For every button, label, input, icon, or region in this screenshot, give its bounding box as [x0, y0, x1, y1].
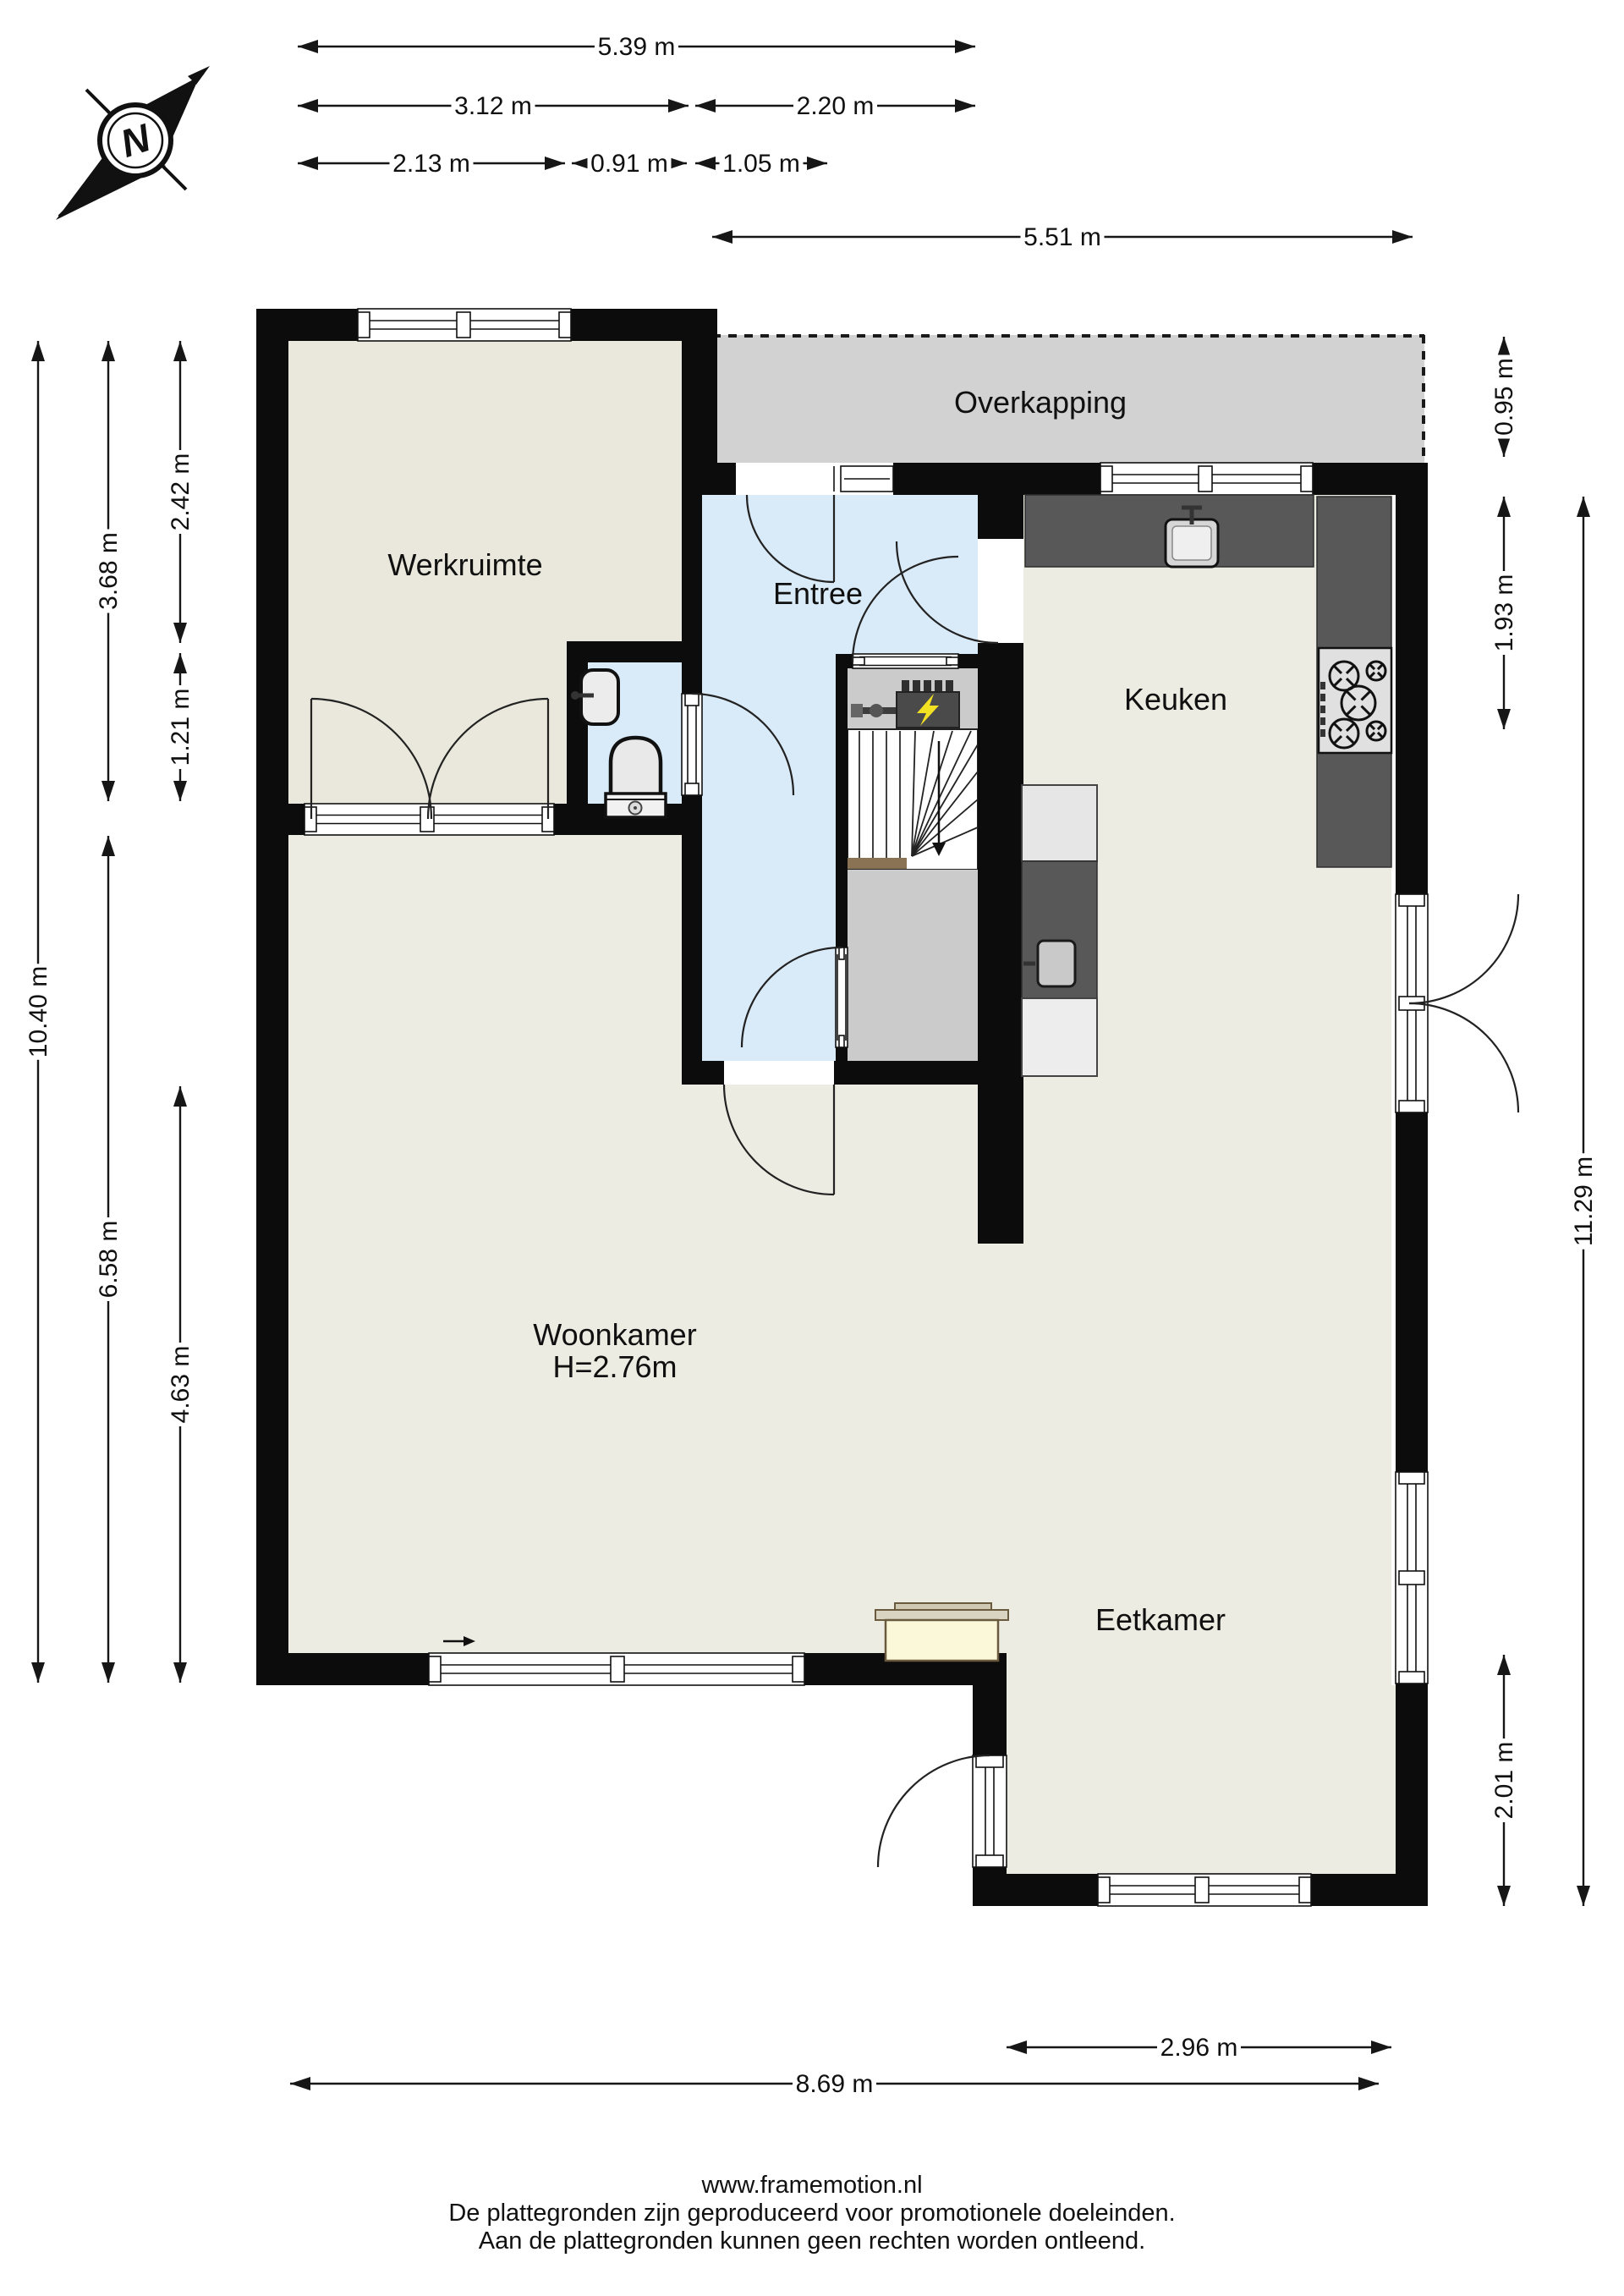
toilet-bowl — [611, 738, 661, 800]
dimension-10.40m: 10.40 m — [25, 341, 52, 1683]
dimension-0.91m: 0.91 m — [572, 150, 687, 178]
arrowhead-left-icon — [712, 230, 732, 244]
toilet-door-frame-box — [682, 694, 702, 795]
dimension-label: 8.69 m — [796, 2070, 874, 2098]
fireplace-mantel — [875, 1610, 1008, 1620]
arrowhead-left-icon — [1007, 2041, 1027, 2054]
arrowhead-left-icon — [695, 99, 716, 113]
dimension-11.29m: 11.29 m — [1570, 497, 1598, 1906]
arrowhead-up-icon — [173, 653, 187, 673]
dimension-label: 2.13 m — [392, 150, 470, 178]
window-werkruimte-north-post — [559, 312, 571, 338]
arrowhead-up-icon — [31, 341, 45, 361]
dimension-2.20m: 2.20 m — [695, 92, 975, 120]
window-keuken-north-post — [1301, 466, 1313, 492]
arrowhead-up-icon — [1577, 497, 1590, 517]
dimension-1.93m: 1.93 m — [1490, 497, 1518, 729]
window-werkruimte-north-mullion — [457, 312, 470, 338]
arrowhead-right-icon — [1358, 2077, 1379, 2090]
west-door-frame — [973, 1755, 1007, 1867]
dimension-label: 5.39 m — [598, 33, 676, 61]
label-woonkamer-height: H=2.76m — [552, 1349, 677, 1384]
dimension-1.05m: 1.05 m — [695, 150, 827, 178]
label-overkapping: Overkapping — [954, 385, 1127, 420]
footer-disclaimer-1: De plattegronden zijn geproduceerd voor … — [0, 2200, 1624, 2227]
label-werkruimte: Werkruimte — [387, 547, 542, 582]
dimension-4.63m: 4.63 m — [167, 1086, 195, 1683]
compass-north: N — [56, 66, 210, 220]
window-woonkamer-south-post — [793, 1656, 804, 1682]
meterkast-door-frame-post — [946, 657, 958, 665]
dimension-label: 6.58 m — [95, 1221, 123, 1299]
dimension-2.13m: 2.13 m — [298, 150, 565, 178]
fireplace-body — [886, 1620, 998, 1661]
toilet-door-frame-post — [685, 694, 699, 706]
window-woonkamer-south — [429, 1653, 804, 1685]
window-woonkamer-south-post — [429, 1656, 441, 1682]
dimension-label: 11.29 m — [1570, 1156, 1598, 1246]
arrowhead-left-icon — [298, 157, 318, 170]
french-doors-frame-post — [1399, 894, 1424, 906]
dimension-label: 1.93 m — [1490, 574, 1518, 652]
window-keuken-north — [1100, 463, 1313, 495]
toilet-door-frame — [682, 694, 702, 795]
footer-url: www.framemotion.nl — [0, 2172, 1624, 2200]
dimension-3.12m: 3.12 m — [298, 92, 689, 120]
keuken-door-opening — [978, 539, 1023, 643]
arrowhead-right-icon — [545, 157, 565, 170]
wall-east — [1396, 463, 1428, 1906]
label-eetkamer: Eetkamer — [1095, 1602, 1226, 1637]
dimension-6.58m: 6.58 m — [95, 836, 123, 1683]
dimension-3.68m: 3.68 m — [95, 341, 123, 801]
arrowhead-up-icon — [101, 836, 115, 856]
arrowhead-down-icon — [173, 781, 187, 801]
window-eetkamer-east-post — [1399, 1672, 1424, 1684]
dimension-label: 2.96 m — [1160, 2034, 1238, 2062]
dimension-label: 5.51 m — [1023, 223, 1101, 251]
dimension-label: 2.42 m — [167, 453, 195, 531]
meter-pipe-end — [851, 704, 863, 717]
meterkast-door-frame-box — [853, 654, 958, 668]
dimension-1.21m: 1.21 m — [167, 653, 195, 801]
dimension-label: 0.95 m — [1490, 358, 1518, 436]
label-keuken: Keuken — [1124, 682, 1227, 717]
window-eetkamer-south-mullion — [1195, 1877, 1209, 1903]
storage-door-frame-post — [839, 948, 844, 959]
dimension-label: 0.91 m — [590, 150, 668, 178]
dimension-5.39m: 5.39 m — [298, 33, 975, 61]
arrowhead-down-icon — [1497, 709, 1511, 729]
west-door-frame-post — [976, 1755, 1003, 1767]
window-werkruimte-north-post — [358, 312, 370, 338]
island-cabinet-top — [1022, 785, 1097, 861]
dimension-label: 3.12 m — [454, 92, 532, 120]
window-eetkamer-east-mullion — [1399, 1571, 1424, 1585]
arrowhead-down-icon — [31, 1662, 45, 1683]
dimension-2.01m: 2.01 m — [1490, 1655, 1518, 1906]
window-eetkamer-south-post — [1299, 1877, 1311, 1903]
arrowhead-up-icon — [1497, 1655, 1511, 1675]
arrowhead-up-icon — [173, 1086, 187, 1107]
arrowhead-right-icon — [807, 157, 827, 170]
storage-door-frame-post — [839, 1035, 844, 1047]
front-door — [834, 466, 893, 492]
window-eetkamer-south — [1098, 1874, 1311, 1906]
floorplan-canvas: N 5.39 m3.12 m2.20 m2.13 m0.91 m1.05 m5.… — [0, 0, 1624, 2296]
arrowhead-down-icon — [173, 623, 187, 643]
arrowhead-down-icon — [1497, 437, 1511, 457]
compass-tick-nw — [86, 90, 112, 115]
footer-disclaimer-2: Aan de plattegronden kunnen geen rechten… — [0, 2227, 1624, 2255]
window-werkruimte-north — [358, 309, 571, 341]
arrowhead-up-icon — [1497, 497, 1511, 517]
island-cabinet-bottom — [1022, 998, 1097, 1076]
arrowhead-up-icon — [173, 341, 187, 361]
arrowhead-left-icon — [290, 2077, 310, 2090]
dimension-label: 1.05 m — [722, 150, 800, 178]
arrowhead-down-icon — [101, 781, 115, 801]
dimension-label: 4.63 m — [167, 1346, 195, 1424]
arrowhead-down-icon — [173, 1662, 187, 1683]
arrowhead-right-icon — [1371, 2041, 1391, 2054]
kitchen-sink-basin — [1172, 526, 1211, 560]
label-entree: Entree — [773, 576, 863, 611]
arrowhead-up-icon — [101, 341, 115, 361]
arrowhead-right-icon — [955, 99, 975, 113]
storage-floor — [848, 870, 978, 1061]
arrowhead-right-icon — [1392, 230, 1413, 244]
window-keuken-north-mullion — [1199, 466, 1212, 492]
island-sink — [1038, 941, 1075, 986]
arrowhead-down-icon — [1497, 1886, 1511, 1906]
arrowhead-left-icon — [695, 157, 716, 170]
west-door-frame-box — [973, 1755, 1007, 1867]
arrowhead-left-icon — [298, 99, 318, 113]
french-doors-frame-post — [1399, 1101, 1424, 1112]
arrowhead-left-icon — [298, 40, 318, 53]
hall-door-opening — [724, 1061, 834, 1085]
toilet-flush-dot — [634, 806, 637, 810]
toilet-door-frame-post — [685, 783, 699, 795]
basin-faucet-knob — [571, 691, 579, 700]
dimension-2.96m: 2.96 m — [1007, 2034, 1391, 2062]
dimension-5.51m: 5.51 m — [712, 223, 1413, 251]
eetkamer-south-floor — [973, 1685, 1428, 1906]
footer: www.framemotion.nl De plattegronden zijn… — [0, 2172, 1624, 2255]
meterkast-door-frame — [853, 654, 958, 668]
dimension-8.69m: 8.69 m — [290, 2070, 1379, 2098]
arrowhead-down-icon — [101, 1662, 115, 1683]
dimension-label: 10.40 m — [25, 966, 52, 1057]
dimension-label: 1.21 m — [167, 689, 195, 766]
dimension-label: 2.01 m — [1490, 1742, 1518, 1820]
label-woonkamer: Woonkamer — [533, 1317, 696, 1352]
window-woonkamer-south-mullion — [611, 1656, 624, 1682]
dimension-label: 3.68 m — [95, 532, 123, 610]
dimension-0.95m: 0.95 m — [1490, 337, 1518, 457]
dimension-2.42m: 2.42 m — [167, 341, 195, 643]
stair-stringer — [848, 858, 907, 869]
dimension-label: 2.20 m — [797, 92, 875, 120]
window-keuken-north-post — [1100, 466, 1112, 492]
west-door-frame-post — [976, 1855, 1003, 1867]
meterkast-door-frame-post — [853, 657, 864, 665]
wall-west — [256, 309, 288, 1685]
window-eetkamer-east — [1396, 1472, 1428, 1684]
meter-pipe-joint — [870, 704, 883, 717]
arrowhead-right-icon — [955, 40, 975, 53]
arrowhead-up-icon — [1497, 337, 1511, 357]
compass-tick-se — [161, 164, 186, 190]
arrowhead-right-icon — [668, 99, 689, 113]
storage-door-frame — [836, 948, 848, 1047]
window-eetkamer-east-post — [1399, 1472, 1424, 1484]
arrowhead-down-icon — [1577, 1886, 1590, 1906]
window-eetkamer-south-post — [1098, 1877, 1110, 1903]
